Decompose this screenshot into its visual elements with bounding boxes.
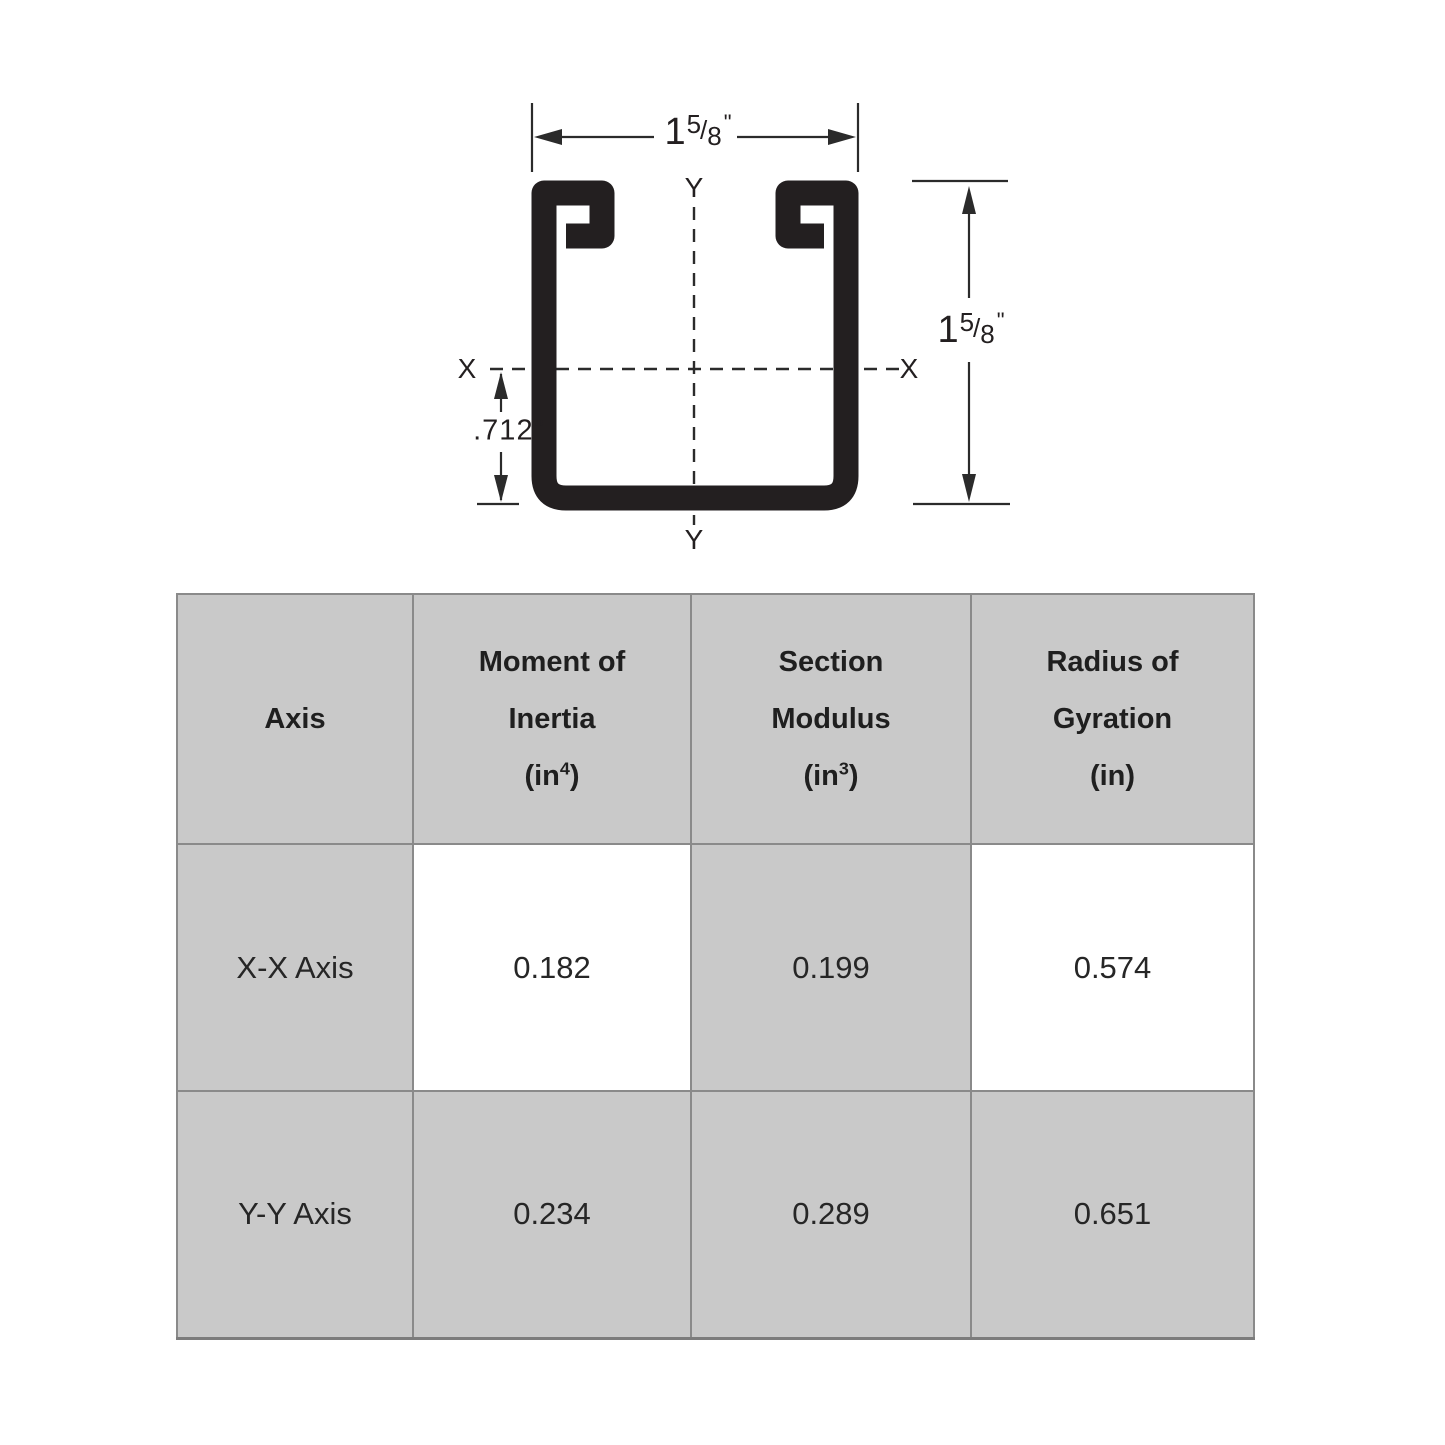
y-axis-label-bottom: Y (685, 526, 704, 554)
cell-yy-gyration: 0.651 (971, 1091, 1254, 1338)
arrowhead-up (962, 186, 976, 214)
cell-xx-gyration: 0.574 (971, 844, 1254, 1091)
page: 15/8" 15/8" .712" X X Y Y Axis Moment of… (0, 0, 1445, 1445)
height-dimension-label: 15/8" (937, 311, 1002, 349)
cell-xx-axis-label: X-X Axis (177, 844, 413, 1091)
unit-in3: (in3) (692, 748, 970, 805)
x-axis-label-left: X (458, 355, 477, 383)
cell-xx-moment: 0.182 (413, 844, 691, 1091)
cell-yy-axis-label: Y-Y Axis (177, 1091, 413, 1338)
header-section-modulus: Section Modulus (in3) (691, 594, 971, 844)
header-moment-of-inertia: Moment of Inertia (in4) (413, 594, 691, 844)
cell-yy-modulus: 0.289 (691, 1091, 971, 1338)
header-axis: Axis (177, 594, 413, 844)
arrowhead-down (494, 475, 508, 502)
y-axis-label-top: Y (685, 174, 704, 202)
header-row: Axis Moment of Inertia (in4) Section Mod… (177, 594, 1254, 844)
unit-in4: (in4) (414, 748, 690, 805)
arrowhead-down (962, 474, 976, 502)
table-row-yy-axis: Y-Y Axis 0.234 0.289 0.651 (177, 1091, 1254, 1338)
x-axis-label-right: X (900, 355, 919, 383)
width-dimension-label: 15/8" (664, 113, 729, 151)
table-row-xx-axis: X-X Axis 0.182 0.199 0.574 (177, 844, 1254, 1091)
cell-xx-modulus: 0.199 (691, 844, 971, 1091)
section-properties-table: Axis Moment of Inertia (in4) Section Mod… (176, 593, 1255, 1340)
arrowhead-right (828, 129, 856, 145)
unit-in: (in) (972, 748, 1253, 805)
cell-yy-moment: 0.234 (413, 1091, 691, 1338)
arrowhead-up (494, 372, 508, 399)
header-radius-of-gyration: Radius of Gyration (in) (971, 594, 1254, 844)
arrowhead-left (534, 129, 562, 145)
offset-dimension-label: .712" (473, 417, 545, 446)
